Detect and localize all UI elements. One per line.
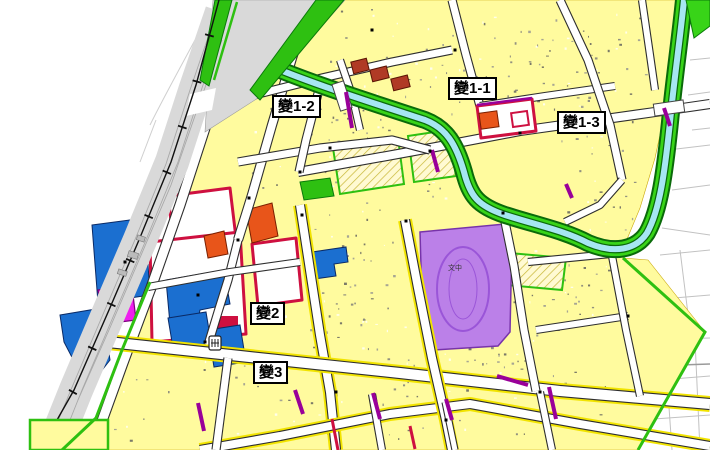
map-canvas[interactable]: 文中	[0, 0, 710, 450]
label-bian-1-2: 變1-2	[272, 95, 321, 118]
school-site-label: 文中	[448, 263, 462, 272]
orange-zone	[204, 231, 228, 258]
label-bian-1-3: 變1-3	[557, 111, 606, 134]
facility-icon	[209, 336, 221, 350]
green-bordered-block	[30, 420, 108, 450]
school-site-zone: 文中	[420, 224, 512, 350]
label-bian-3: 變3	[253, 361, 288, 384]
label-bian-1-1: 變1-1	[448, 77, 497, 100]
label-bian-2: 變2	[250, 302, 285, 325]
zoning-map: 文中	[0, 0, 710, 450]
change-zone-red-3	[252, 238, 302, 306]
